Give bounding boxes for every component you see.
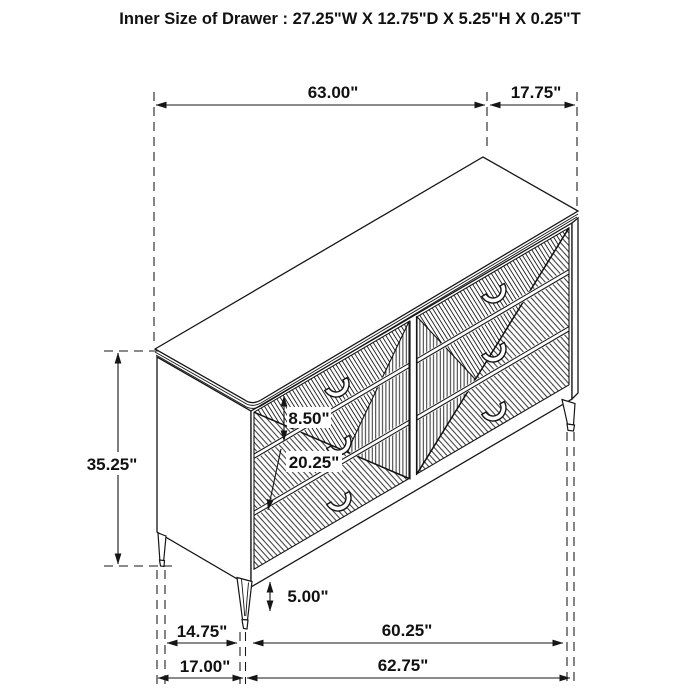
front-right-leg-foot	[567, 424, 575, 431]
dresser-dimension-diagram: 63.00" 17.75" 35.25" 8.50" 20.25" 5.00" …	[0, 0, 700, 700]
dim-label-base-width: 62.75"	[378, 656, 429, 675]
front-left-leg-foot	[242, 620, 248, 630]
dim-label-height: 35.25"	[87, 455, 138, 474]
right-end-panel-edge	[572, 218, 578, 399]
dim-label-top-drawer: 8.50"	[288, 409, 329, 428]
center-divider	[410, 316, 417, 479]
dresser-drawing	[155, 157, 578, 629]
dim-label-leg-width-span: 60.25"	[382, 621, 433, 640]
dim-label-leg-height: 5.00"	[287, 587, 328, 606]
rear-left-leg-foot	[160, 560, 165, 567]
page-title: Inner Size of Drawer : 27.25"W X 12.75"D…	[119, 10, 580, 28]
dim-label-base-depth: 17.00"	[180, 657, 231, 676]
dimension-drawing-page: 63.00" 17.75" 35.25" 8.50" 20.25" 5.00" …	[0, 0, 700, 700]
dim-label-lower-section: 20.25"	[289, 453, 340, 472]
divider-strip	[410, 316, 417, 479]
dim-label-leg-depth-span: 14.75"	[177, 622, 228, 641]
dim-label-top-depth: 17.75"	[511, 83, 562, 102]
dim-label-top-width: 63.00"	[308, 83, 359, 102]
front-right-leg	[562, 400, 575, 426]
rear-left-leg	[158, 533, 166, 563]
